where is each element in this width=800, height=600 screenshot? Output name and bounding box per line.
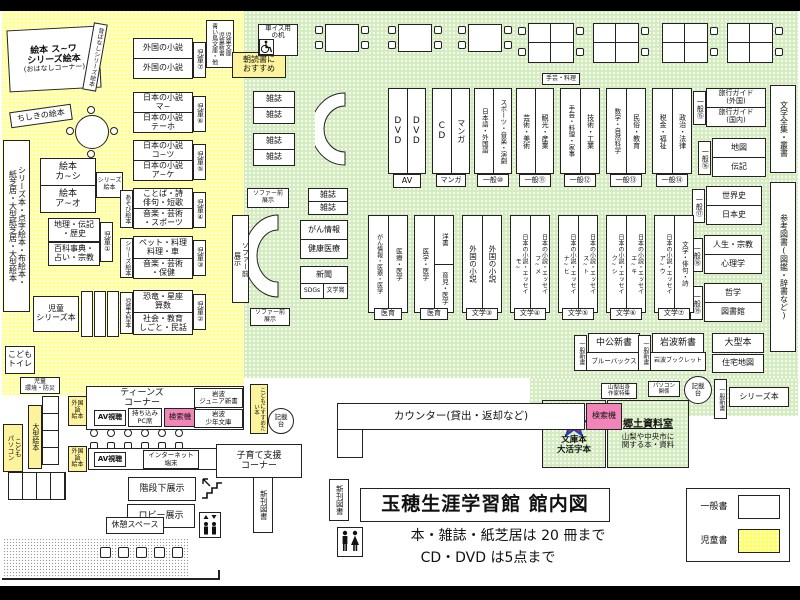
kodomo-susume-shelf: こどもにすすめたい本 bbox=[250, 384, 268, 434]
lit4-shelf: 日本の小説・エッセイ モ~日本の小説・エッセイ フ~メ bbox=[510, 215, 550, 313]
av-seat: AV視聴 bbox=[94, 452, 126, 467]
lit5-shelf: 日本の小説・エッセイ ナ~ヒ日本の小説・エッセイ ス~ト bbox=[558, 215, 598, 313]
table-4seat bbox=[528, 23, 574, 63]
chair bbox=[710, 27, 718, 35]
ippan-shinsho-tag: 一般新書 bbox=[714, 379, 727, 419]
jido5-tag: 児童⑤ bbox=[193, 144, 206, 180]
legend-children-label: 児童書 bbox=[694, 534, 734, 548]
legend-children-swatch bbox=[738, 529, 780, 553]
foreign-novel-col: 外国の小説 bbox=[482, 216, 502, 312]
shinkan-tosho-shelf: 新刊図書 bbox=[253, 477, 273, 533]
yosho-ikuji-col: 洋書育児・医学 bbox=[434, 216, 454, 312]
g16-tag: 一般⑯ bbox=[698, 141, 711, 175]
zasshi-shelf: 雑誌 bbox=[253, 133, 295, 150]
sugaku-col: 数学・自然科学 bbox=[607, 89, 626, 173]
chair bbox=[504, 26, 512, 34]
bench bbox=[100, 547, 111, 558]
chair bbox=[107, 429, 115, 437]
chair bbox=[110, 127, 118, 135]
ness-e-col: 日本の小説・エッセイ エ~キ bbox=[626, 216, 646, 312]
ness-fu-col: 日本の小説・エッセイ フ~メ bbox=[530, 216, 550, 312]
ohanashi-sub: (おはなしコーナー) bbox=[24, 64, 86, 75]
lending-rule-2: CD・DVD は5点まで bbox=[368, 549, 608, 569]
series-ehon-tag2: シリーズ絵本 bbox=[120, 238, 133, 278]
chair bbox=[315, 26, 323, 34]
manga-tag: マンガ bbox=[436, 174, 466, 187]
shelf-cell bbox=[42, 396, 59, 414]
minzoku-col: 民俗・教育 bbox=[626, 89, 646, 173]
ikuji-cell: 育児・医学 bbox=[435, 264, 454, 313]
sofa-display-label: ソファー前 展示 bbox=[247, 188, 289, 208]
service-counter-leg bbox=[337, 429, 363, 458]
shugei-mini-tag: 手芸・料理 bbox=[542, 73, 580, 85]
low-shelf bbox=[8, 472, 66, 500]
table-4seat bbox=[593, 23, 639, 63]
seiji-col: 政治・法律 bbox=[672, 89, 692, 173]
shugei-col: 手芸・料理・家事 bbox=[561, 89, 580, 173]
ogata-ehon-shelf: 大型絵本 bbox=[28, 405, 42, 469]
chair bbox=[518, 48, 526, 56]
manga-col: マンガ bbox=[451, 89, 470, 173]
ongaku-hoken-shelf: 音楽・芸術 ・保健 bbox=[133, 258, 193, 279]
jido3-tag: 児童③ bbox=[193, 240, 206, 276]
shelf-cell bbox=[107, 291, 119, 337]
shelf-cell bbox=[81, 291, 93, 337]
shakai-shelf: 社会・教育 しごと・民話 bbox=[133, 312, 193, 335]
sofa-display-label: ソファー前 展示 bbox=[250, 308, 290, 326]
ness-mo-col: 日本の小説・エッセイ モ~ bbox=[511, 216, 530, 312]
chiri-denki-shelf: 地理・伝記 ・歴史 bbox=[48, 218, 100, 242]
shinbun-shelf: 新聞 bbox=[300, 266, 348, 284]
internet-terminal: インターネット 端末 bbox=[143, 450, 199, 469]
chair bbox=[775, 27, 783, 35]
search-terminal: 検索機 bbox=[586, 403, 622, 430]
ippan-shinsho-tag: 一般新書 bbox=[574, 335, 587, 371]
ehon-a-o-shelf: 絵本 ア~オ bbox=[40, 185, 96, 213]
kaidan-display: 階段下展示 bbox=[128, 477, 196, 501]
round-table bbox=[75, 115, 109, 149]
zeikin-col: 税金・福祉 bbox=[653, 89, 672, 173]
shelf-cell bbox=[42, 430, 59, 448]
zasshi-shelf: 雑誌 bbox=[253, 91, 295, 108]
ness-na-col: 日本の小説・エッセイ ナ~ヒ bbox=[559, 216, 578, 312]
toshokan-shelf: 図書館 bbox=[704, 302, 762, 322]
chair bbox=[576, 48, 584, 56]
lit3-tag: 文学③ bbox=[466, 308, 498, 320]
library-floor-map: 絵本 ス~ワ シリーズ絵本 (おはなしコーナー) 昔ばなしシリーズ絵本 ちしきの… bbox=[0, 0, 800, 600]
ness-ku-col: 日本の小説・エッセイ ク~シ bbox=[607, 216, 626, 312]
shinri-shelf: 心理学 bbox=[704, 254, 762, 274]
dvd-shelf: DVDDVD bbox=[388, 88, 426, 174]
g12-shelf: 手芸・料理・家事技術・工業 bbox=[560, 88, 600, 174]
foreign-novel-col: 外国の小説 bbox=[463, 216, 482, 312]
tetsugaku-shelf: 哲学 bbox=[704, 283, 762, 303]
chizu-shelf: 地図 bbox=[712, 138, 766, 158]
nihongo-col: 日本語・外国語 bbox=[475, 89, 493, 173]
kosodate-corner: 子育て支援 コーナー bbox=[216, 444, 302, 478]
sports-col: スポーツ・音楽・演劇 bbox=[493, 89, 512, 173]
g15-tag: 一般⑮ bbox=[693, 91, 706, 125]
chair bbox=[175, 429, 183, 437]
bungakusho-shelf: 文学賞 bbox=[323, 283, 348, 299]
nihonshi-shelf: 日本史 bbox=[706, 205, 762, 225]
chair bbox=[775, 48, 783, 56]
lit6-shelf: 日本の小説・エッセイ ク~シ日本の小説・エッセイ エ~キ bbox=[606, 215, 646, 313]
iryo-igaku-col: 医療・医学 bbox=[388, 216, 408, 312]
jido-shinsho-shelf: 児童文庫 児童新書 青い鳥文庫・他 bbox=[206, 20, 234, 68]
chair bbox=[710, 48, 718, 56]
kids-toilet: こども トイレ bbox=[5, 346, 35, 374]
kenko-iryo-shelf: 健康医療 bbox=[300, 239, 348, 259]
lit4-tag: 文学④ bbox=[514, 308, 546, 320]
series-braille-shelf: シリーズ本・点字絵本・布絵本・ 紙芝居・大型紙芝居・大型絵本 bbox=[3, 140, 30, 312]
g13-tag: 一般⑬ bbox=[610, 174, 642, 187]
g14-tag: 一般⑭ bbox=[656, 174, 688, 187]
bluebacks-shelf: ブルーバックス bbox=[586, 352, 642, 371]
asobi-ehon-tag: あそび絵本 bbox=[120, 190, 133, 228]
kyodo-title: 郷土資料室 bbox=[623, 419, 673, 430]
igaku-col: 医学・医学 bbox=[415, 216, 434, 312]
chair bbox=[361, 26, 369, 34]
table-4seat bbox=[727, 23, 773, 63]
table bbox=[468, 24, 502, 52]
med1-tag: 医育 bbox=[374, 308, 402, 320]
jido6-tag: 児童⑥ bbox=[193, 96, 206, 132]
iwanami-booklet-shelf: 岩波ブックレット bbox=[650, 352, 706, 371]
hyakka-shelf: 百科事典・ 占い・宗教 bbox=[48, 242, 100, 266]
kotoba-shelf: ことば・詩 俳句・短歌 bbox=[133, 188, 193, 209]
bungaku-haiku-col: 文学・俳句・詩 bbox=[674, 216, 694, 312]
chair bbox=[641, 48, 649, 56]
chuko-shinsho-shelf: 中公新書 bbox=[588, 333, 640, 353]
med2-shelf: 医学・医学 洋書育児・医学 bbox=[414, 215, 454, 313]
gan-joho-shelf: がん情報 bbox=[300, 220, 348, 240]
shelf-cell bbox=[42, 413, 59, 431]
jido2-tag: 児童② bbox=[193, 294, 206, 330]
wheelchair-icon bbox=[259, 39, 274, 55]
dvd-col: DVD bbox=[407, 89, 426, 173]
g11-tag: 一般⑪ bbox=[519, 174, 551, 187]
legend-general-label: 一般書 bbox=[694, 500, 734, 514]
chair bbox=[87, 106, 95, 114]
stairs-icon bbox=[200, 476, 224, 500]
lit5-tag: 文学⑤ bbox=[562, 308, 594, 320]
jp-novel-teho-shelf: 日本の小説 テーホ bbox=[133, 112, 193, 133]
toilet-icon bbox=[337, 527, 363, 557]
ongaku-sports-shelf: 音楽・芸術 ・スポーツ bbox=[133, 208, 193, 229]
letterbox-top bbox=[0, 0, 800, 11]
yamanashi-tag: 山梨出身 作家特集 bbox=[601, 383, 637, 399]
map-title: 玉穂生涯学習館 館内図 bbox=[360, 488, 610, 522]
kyukei-carpet bbox=[3, 538, 188, 578]
gaikokugo-ehon-tag: 外国語 絵本 bbox=[68, 446, 87, 472]
g10-shelf: 日本語・外国語スポーツ・音楽・演劇 bbox=[474, 88, 512, 174]
series-ehon-tag: シリーズ絵本 bbox=[96, 172, 123, 198]
bungaku-zenshu-shelf: 文学全集・叢書 bbox=[770, 85, 796, 173]
ogata-bon-shelf: 大型本 bbox=[712, 333, 764, 353]
ehon-ka-shi-shelf: 絵本 カ~シ bbox=[40, 158, 96, 186]
shinkan-tosho-shelf: 新刊図書 bbox=[329, 479, 349, 521]
elevator-icon bbox=[199, 512, 221, 538]
chair bbox=[434, 41, 442, 49]
chair bbox=[388, 41, 396, 49]
kisaidai-desk: 記載 台 bbox=[268, 408, 294, 434]
sofa-display-vlabel: ソファー前 展示 bbox=[232, 215, 249, 303]
wheelchair-desk-label: 車イス用 の机 bbox=[265, 25, 291, 40]
iwanami-shonen-shelf: 岩波 少年文庫 bbox=[194, 409, 243, 428]
chair bbox=[518, 27, 526, 35]
gaikokugo-ehon-tag: 外国語 絵本 bbox=[68, 396, 87, 426]
lit6-tag: 文学⑥ bbox=[610, 308, 642, 320]
jido1-tag: 児童① bbox=[100, 222, 113, 262]
chair bbox=[458, 26, 466, 34]
chair bbox=[158, 429, 166, 437]
iwanami-shinsho-shelf: 岩波新書 bbox=[652, 333, 704, 353]
bench bbox=[172, 547, 183, 558]
yosho-cell: 洋書 bbox=[435, 216, 454, 264]
byod-pc-seat: 持ち込み PC席 bbox=[128, 408, 162, 427]
service-counter: カウンター(貸出・返却など) bbox=[337, 403, 585, 430]
foreign-novel-shelf: 外国の小説 bbox=[133, 38, 193, 59]
lending-rule-1: 本・雑誌・紙芝居は 20 冊まで bbox=[368, 526, 648, 548]
series-bon-shelf: シリーズ本 bbox=[729, 387, 789, 407]
cd-col: CD bbox=[433, 89, 451, 173]
geijutsu-col: 芸術・美術 bbox=[517, 89, 535, 173]
chair bbox=[361, 41, 369, 49]
chair bbox=[504, 41, 512, 49]
kodomo-pc-shelf: こども パソコン bbox=[3, 424, 23, 472]
legend-general-swatch bbox=[738, 495, 780, 519]
letterbox-bottom bbox=[0, 586, 800, 600]
chair bbox=[641, 27, 649, 35]
g13-shelf: 数学・自然科学民俗・教育 bbox=[606, 88, 646, 174]
kyukei-space-label: 休憩スペース bbox=[106, 517, 164, 534]
ippan-shinsho-tag: 一般新書 bbox=[638, 335, 651, 371]
bunko-label: 文庫本 大活字本 bbox=[557, 436, 591, 455]
g12-tag: 一般⑫ bbox=[564, 174, 596, 187]
sanko-tosho-shelf: 参考図書(図鑑・辞書など) bbox=[770, 182, 796, 352]
jp-novel-ake-shelf: 日本の小説 ア~ケ bbox=[133, 160, 193, 181]
chair bbox=[90, 429, 98, 437]
zasshi-shelf: 雑誌 bbox=[253, 107, 295, 124]
chair bbox=[576, 27, 584, 35]
jp-novel-ma-shelf: 日本の小説 マ~ bbox=[133, 92, 193, 113]
g14-shelf: 税金・福祉政治・法律 bbox=[652, 88, 692, 174]
jido-series-shelf: 児童 シリーズ本 bbox=[33, 296, 79, 332]
bench bbox=[118, 547, 129, 558]
sekaishi-shelf: 世界史 bbox=[706, 186, 762, 206]
jutaku-chizu-shelf: 住宅地図 bbox=[712, 354, 764, 373]
chair bbox=[434, 26, 442, 34]
kyoryu-shelf: 恐竜・星座 算数 bbox=[133, 290, 193, 313]
jido4-tag: 児童④ bbox=[193, 192, 206, 228]
sofa-crescent bbox=[248, 212, 284, 300]
travel-guide-domestic: 旅行ガイド (国内) bbox=[706, 107, 766, 127]
bench bbox=[136, 547, 147, 558]
denki-shelf: 伝記 bbox=[712, 157, 766, 177]
chair bbox=[87, 150, 95, 158]
pc-kankei-tag: パソコン 関係 bbox=[648, 381, 680, 397]
sofa-crescent bbox=[315, 90, 351, 168]
table-4seat bbox=[662, 23, 708, 63]
teens-corner-label: ティーンズ コーナー bbox=[92, 388, 192, 408]
chair bbox=[315, 41, 323, 49]
shelf-cell bbox=[42, 447, 59, 465]
kanko-col: 観光・産業 bbox=[535, 89, 554, 173]
chair bbox=[66, 127, 74, 135]
lit7-tag: 文学⑦ bbox=[658, 308, 690, 320]
ness-a-col: 日本の小説・エッセイ ア~ウ bbox=[655, 216, 674, 312]
jido-ogata-tag: 児童大型本 bbox=[120, 292, 133, 334]
zasshi-shelf: 雑誌 bbox=[253, 149, 295, 166]
search-terminal: 検索機 bbox=[164, 408, 196, 427]
shelf-cell bbox=[94, 291, 106, 337]
pet-ryori-shelf: ペット・料理 料理・車 bbox=[133, 236, 193, 259]
foreign-novel-shelf: 外国の小説 bbox=[133, 58, 193, 79]
jinsei-shelf: 人生・宗教 bbox=[704, 235, 762, 255]
chair bbox=[124, 429, 132, 437]
kyodo-sub: 山梨や中央市に 関する本・資料 bbox=[622, 433, 675, 450]
bench bbox=[154, 547, 165, 558]
table bbox=[398, 24, 432, 52]
ness-su-col: 日本の小説・エッセイ ス~ト bbox=[578, 216, 598, 312]
sdgs-shelf: SDGs bbox=[300, 283, 324, 299]
zasshi-shelf: 雑誌 bbox=[308, 188, 348, 202]
dvd-col: DVD bbox=[389, 89, 407, 173]
kankyo-bosai-tag: 児童 環境・防災 bbox=[20, 377, 60, 394]
cd-manga-shelf: CDマンガ bbox=[432, 88, 470, 174]
chair bbox=[388, 26, 396, 34]
zasshi-shelf: 雑誌 bbox=[308, 201, 348, 215]
chair bbox=[141, 429, 149, 437]
g11-shelf: 芸術・美術観光・産業 bbox=[516, 88, 554, 174]
med1-shelf: がん情報・医療・医学医療・医学 bbox=[368, 215, 408, 313]
gan-iryo-col: がん情報・医療・医学 bbox=[369, 216, 388, 312]
med2-tag: 医育 bbox=[420, 308, 448, 320]
jp-novel-ko-shelf: 日本の小説 コ~ツ bbox=[133, 140, 193, 161]
travel-guide-foreign: 旅行ガイド (外国) bbox=[706, 88, 766, 108]
chair bbox=[458, 41, 466, 49]
av-seat: AV視聴 bbox=[94, 410, 126, 426]
table bbox=[325, 24, 359, 52]
gijutsu-col: 技術・工業 bbox=[580, 89, 600, 173]
g10-tag: 一般⑩ bbox=[477, 174, 509, 187]
jido7-tag: 児童⑦ bbox=[193, 42, 206, 78]
lit3-shelf: 外国の小説外国の小説 bbox=[462, 215, 502, 313]
iwanami-junior-shelf: 岩波 ジュニア新書 bbox=[194, 388, 243, 408]
lit7-shelf: 日本の小説・エッセイ ア~ウ文学・俳句・詩 bbox=[654, 215, 694, 313]
av-tag: AV bbox=[393, 174, 421, 188]
